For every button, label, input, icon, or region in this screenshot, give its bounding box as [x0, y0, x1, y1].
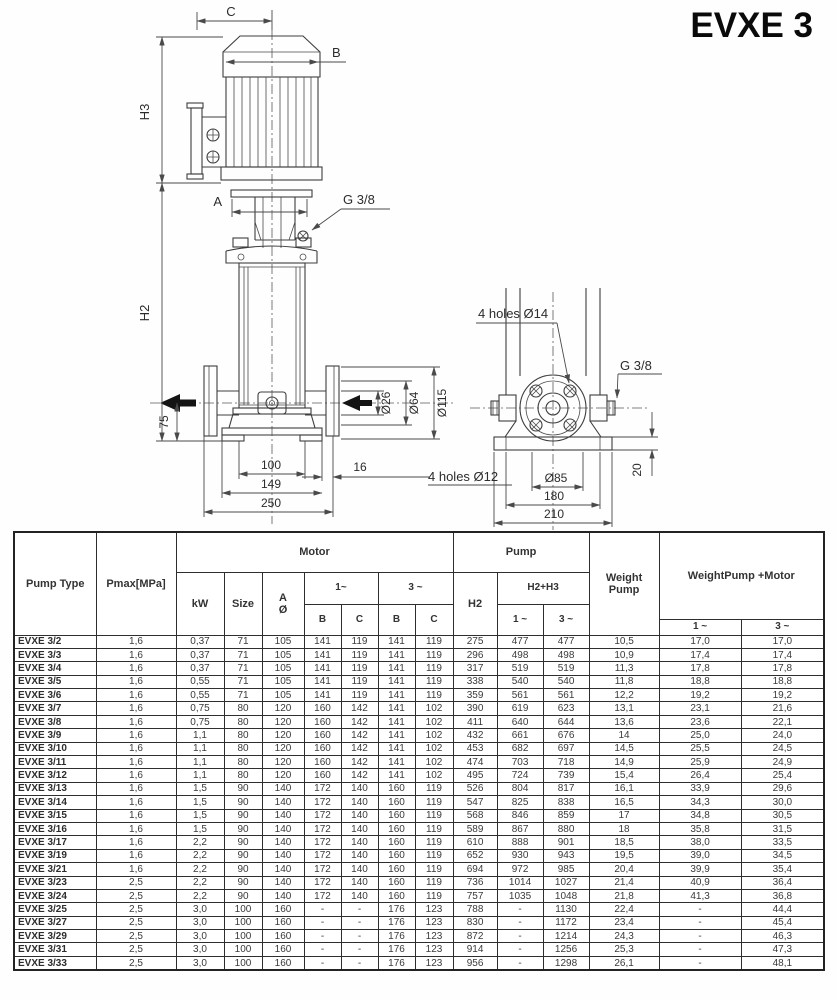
value-cell: 71: [224, 675, 262, 688]
value-cell: 880: [543, 822, 589, 835]
value-cell: 141: [378, 742, 415, 755]
value-cell: 3,0: [176, 916, 224, 929]
value-cell: 160: [304, 715, 341, 728]
value-cell: 24,9: [741, 756, 824, 769]
value-cell: 140: [262, 876, 304, 889]
value-cell: 105: [262, 635, 304, 648]
value-cell: 736: [453, 876, 497, 889]
header-b-3ph: B: [378, 604, 415, 635]
value-cell: 13,1: [589, 702, 659, 715]
value-cell: 1,6: [96, 715, 176, 728]
value-cell: 160: [304, 756, 341, 769]
value-cell: 568: [453, 809, 497, 822]
table-body: EVXE 3/21,60,377110514111914111927547747…: [14, 635, 824, 970]
header-weight-pump: WeightPump: [589, 532, 659, 635]
header-h2h3-3ph: 3 ~: [543, 604, 589, 635]
value-cell: 140: [341, 876, 378, 889]
table-row: EVXE 3/151,61,59014017214016011956884685…: [14, 809, 824, 822]
table-row: EVXE 3/121,61,18012016014214110249572473…: [14, 769, 824, 782]
value-cell: 17,0: [659, 635, 741, 648]
pump-type-cell: EVXE 3/12: [14, 769, 96, 782]
value-cell: 90: [224, 876, 262, 889]
value-cell: 838: [543, 796, 589, 809]
value-cell: 3,0: [176, 930, 224, 943]
value-cell: 21,4: [589, 876, 659, 889]
value-cell: 610: [453, 836, 497, 849]
pump-type-cell: EVXE 3/15: [14, 809, 96, 822]
header-pump-type: Pump Type: [14, 532, 96, 635]
value-cell: -: [659, 930, 741, 943]
value-cell: 36,4: [741, 876, 824, 889]
value-cell: -: [304, 916, 341, 929]
value-cell: 25,0: [659, 729, 741, 742]
pump-type-cell: EVXE 3/5: [14, 675, 96, 688]
value-cell: 23,1: [659, 702, 741, 715]
header-c-3ph: C: [415, 604, 453, 635]
value-cell: 453: [453, 742, 497, 755]
header-motor-1ph: 1~: [304, 572, 378, 604]
value-cell: 17: [589, 809, 659, 822]
value-cell: 34,5: [741, 849, 824, 862]
pump-type-cell: EVXE 3/7: [14, 702, 96, 715]
pump-type-cell: EVXE 3/21: [14, 863, 96, 876]
header-h2h3: H2+H3: [497, 572, 589, 604]
value-cell: 526: [453, 782, 497, 795]
value-cell: 119: [341, 689, 378, 702]
technical-drawing: C B H3 H2 75: [0, 0, 837, 531]
value-cell: 140: [341, 796, 378, 809]
value-cell: 2,5: [96, 930, 176, 943]
value-cell: 24,0: [741, 729, 824, 742]
value-cell: 141: [304, 662, 341, 675]
value-cell: 972: [497, 863, 543, 876]
value-cell: 589: [453, 822, 497, 835]
value-cell: 21,8: [589, 889, 659, 902]
weight-line2: Pump: [609, 584, 640, 596]
value-cell: 80: [224, 702, 262, 715]
value-cell: 11,3: [589, 662, 659, 675]
value-cell: 172: [304, 889, 341, 902]
value-cell: 119: [341, 648, 378, 661]
value-cell: 1130: [543, 903, 589, 916]
value-cell: 172: [304, 863, 341, 876]
pump-type-cell: EVXE 3/3: [14, 648, 96, 661]
value-cell: 3,0: [176, 956, 224, 970]
weight-line1: Weight: [606, 572, 642, 584]
value-cell: 100: [224, 903, 262, 916]
value-cell: 739: [543, 769, 589, 782]
dim-b: B: [226, 45, 346, 62]
value-cell: 17,0: [741, 635, 824, 648]
value-cell: 519: [497, 662, 543, 675]
dim-label-149: 149: [261, 477, 281, 491]
value-cell: 140: [341, 863, 378, 876]
value-cell: 119: [341, 635, 378, 648]
dim-20: 20: [612, 412, 658, 477]
value-cell: 160: [262, 916, 304, 929]
value-cell: 80: [224, 756, 262, 769]
pump-type-cell: EVXE 3/25: [14, 903, 96, 916]
value-cell: 160: [378, 849, 415, 862]
value-cell: 1,6: [96, 796, 176, 809]
value-cell: 160: [262, 943, 304, 956]
value-cell: 141: [378, 715, 415, 728]
value-cell: -: [341, 956, 378, 970]
value-cell: 105: [262, 662, 304, 675]
value-cell: 724: [497, 769, 543, 782]
value-cell: 17,8: [659, 662, 741, 675]
value-cell: 123: [415, 916, 453, 929]
value-cell: 160: [304, 742, 341, 755]
value-cell: 80: [224, 769, 262, 782]
value-cell: 17,4: [741, 648, 824, 661]
header-weight-pump-motor: WeightPump +Motor: [659, 532, 824, 619]
value-cell: 105: [262, 689, 304, 702]
value-cell: 956: [453, 956, 497, 970]
value-cell: 25,9: [659, 756, 741, 769]
value-cell: 160: [262, 930, 304, 943]
value-cell: 498: [543, 648, 589, 661]
value-cell: 71: [224, 635, 262, 648]
table-row: EVXE 3/332,53,0100160--176123956-129826,…: [14, 956, 824, 970]
value-cell: 80: [224, 742, 262, 755]
value-cell: 172: [304, 849, 341, 862]
value-cell: 160: [262, 903, 304, 916]
pump-type-cell: EVXE 3/23: [14, 876, 96, 889]
table-row: EVXE 3/272,53,0100160--176123830-117223,…: [14, 916, 824, 929]
value-cell: 817: [543, 782, 589, 795]
value-cell: 176: [378, 916, 415, 929]
dim-h3: H3: [137, 37, 223, 183]
value-cell: 100: [224, 943, 262, 956]
value-cell: 29,6: [741, 782, 824, 795]
value-cell: 71: [224, 689, 262, 702]
value-cell: 141: [378, 675, 415, 688]
dim-label-250: 250: [261, 496, 281, 510]
value-cell: 120: [262, 769, 304, 782]
value-cell: 17,8: [741, 662, 824, 675]
value-cell: 141: [378, 756, 415, 769]
pump-type-cell: EVXE 3/8: [14, 715, 96, 728]
table-row: EVXE 3/111,61,18012016014214110247470371…: [14, 756, 824, 769]
value-cell: 19,2: [659, 689, 741, 702]
value-cell: 80: [224, 729, 262, 742]
value-cell: 540: [497, 675, 543, 688]
value-cell: 3,0: [176, 943, 224, 956]
dim-label-100: 100: [261, 458, 281, 472]
table-row: EVXE 3/191,62,29014017214016011965293094…: [14, 849, 824, 862]
value-cell: 1256: [543, 943, 589, 956]
value-cell: 160: [378, 782, 415, 795]
value-cell: 495: [453, 769, 497, 782]
value-cell: 120: [262, 715, 304, 728]
value-cell: 71: [224, 648, 262, 661]
value-cell: 90: [224, 782, 262, 795]
value-cell: 0,75: [176, 702, 224, 715]
value-cell: 859: [543, 809, 589, 822]
value-cell: 142: [341, 756, 378, 769]
value-cell: 985: [543, 863, 589, 876]
value-cell: 296: [453, 648, 497, 661]
pump-type-cell: EVXE 3/13: [14, 782, 96, 795]
value-cell: 21,6: [741, 702, 824, 715]
value-cell: 16,1: [589, 782, 659, 795]
value-cell: 26,4: [659, 769, 741, 782]
value-cell: 1,6: [96, 782, 176, 795]
value-cell: 141: [304, 689, 341, 702]
value-cell: 18,8: [659, 675, 741, 688]
value-cell: 3,0: [176, 903, 224, 916]
value-cell: 176: [378, 956, 415, 970]
value-cell: 172: [304, 796, 341, 809]
value-cell: 1014: [497, 876, 543, 889]
value-cell: 23,6: [659, 715, 741, 728]
motor-base-band: [221, 167, 322, 180]
table-row: EVXE 3/161,61,59014017214016011958986788…: [14, 822, 824, 835]
value-cell: 1298: [543, 956, 589, 970]
value-cell: -: [497, 903, 543, 916]
g38-label-front: G 3/8: [343, 192, 375, 207]
value-cell: 2,2: [176, 863, 224, 876]
value-cell: 561: [543, 689, 589, 702]
dim-label-c: C: [226, 4, 235, 19]
vent-fitting: [298, 231, 308, 241]
value-cell: 25,5: [659, 742, 741, 755]
value-cell: 102: [415, 729, 453, 742]
value-cell: 477: [497, 635, 543, 648]
value-cell: 90: [224, 849, 262, 862]
value-cell: -: [341, 930, 378, 943]
right-flange: [305, 366, 339, 436]
holes12-label: 4 holes Ø12: [428, 469, 498, 484]
value-cell: 41,3: [659, 889, 741, 902]
value-cell: 38,0: [659, 836, 741, 849]
value-cell: -: [304, 943, 341, 956]
value-cell: 140: [341, 822, 378, 835]
value-cell: 1172: [543, 916, 589, 929]
header-pump: Pump: [453, 532, 589, 572]
value-cell: 2,5: [96, 903, 176, 916]
value-cell: 160: [304, 769, 341, 782]
value-cell: 1,1: [176, 756, 224, 769]
value-cell: 140: [262, 822, 304, 835]
table-row: EVXE 3/242,52,29014017214016011975710351…: [14, 889, 824, 902]
table-row: EVXE 3/232,52,29014017214016011973610141…: [14, 876, 824, 889]
flow-arrow-suction: [342, 395, 372, 411]
value-cell: 25,4: [741, 769, 824, 782]
dim-label-d115: Ø115: [435, 388, 449, 417]
value-cell: 18: [589, 822, 659, 835]
header-weight-3ph: 3 ~: [741, 619, 824, 635]
value-cell: 498: [497, 648, 543, 661]
table-row: EVXE 3/91,61,180120160142141102432661676…: [14, 729, 824, 742]
dim-label-180: 180: [544, 489, 564, 503]
table-row: EVXE 3/41,60,377110514111914111931751951…: [14, 662, 824, 675]
dimensions-table: Pump Type Pmax[MPa] Motor Pump WeightPum…: [13, 531, 825, 971]
pump-type-cell: EVXE 3/19: [14, 849, 96, 862]
value-cell: 830: [453, 916, 497, 929]
value-cell: 888: [497, 836, 543, 849]
value-cell: 411: [453, 715, 497, 728]
value-cell: 140: [341, 889, 378, 902]
value-cell: 1,6: [96, 635, 176, 648]
dim-d85: Ø85: [532, 471, 583, 487]
value-cell: 119: [415, 796, 453, 809]
dim-label-d26: Ø26: [379, 391, 393, 414]
value-cell: 123: [415, 930, 453, 943]
value-cell: 123: [415, 943, 453, 956]
value-cell: 90: [224, 809, 262, 822]
value-cell: -: [497, 916, 543, 929]
value-cell: 640: [497, 715, 543, 728]
value-cell: -: [497, 930, 543, 943]
value-cell: 18,8: [741, 675, 824, 688]
value-cell: 12,2: [589, 689, 659, 702]
value-cell: 176: [378, 943, 415, 956]
value-cell: 338: [453, 675, 497, 688]
dim-c: C: [197, 4, 272, 30]
value-cell: 23,4: [589, 916, 659, 929]
value-cell: 1027: [543, 876, 589, 889]
value-cell: 1,6: [96, 729, 176, 742]
value-cell: 15,4: [589, 769, 659, 782]
value-cell: 142: [341, 769, 378, 782]
value-cell: 141: [304, 635, 341, 648]
value-cell: 1035: [497, 889, 543, 902]
value-cell: 1,6: [96, 662, 176, 675]
value-cell: 119: [415, 863, 453, 876]
value-cell: -: [304, 930, 341, 943]
value-cell: 172: [304, 876, 341, 889]
value-cell: -: [497, 943, 543, 956]
value-cell: 141: [378, 635, 415, 648]
table-row: EVXE 3/71,60,758012016014214110239061962…: [14, 702, 824, 715]
value-cell: 2,2: [176, 876, 224, 889]
value-cell: 141: [304, 648, 341, 661]
value-cell: 10,9: [589, 648, 659, 661]
table-row: EVXE 3/211,62,29014017214016011969497298…: [14, 863, 824, 876]
value-cell: 140: [262, 849, 304, 862]
value-cell: 694: [453, 863, 497, 876]
value-cell: 35,4: [741, 863, 824, 876]
value-cell: 867: [497, 822, 543, 835]
value-cell: 141: [304, 675, 341, 688]
value-cell: 2,2: [176, 849, 224, 862]
value-cell: 119: [415, 675, 453, 688]
value-cell: 477: [543, 635, 589, 648]
value-cell: 100: [224, 956, 262, 970]
value-cell: 474: [453, 756, 497, 769]
dim-label-210: 210: [544, 507, 564, 521]
value-cell: 18,5: [589, 836, 659, 849]
value-cell: 1,6: [96, 648, 176, 661]
value-cell: 359: [453, 689, 497, 702]
value-cell: 275: [453, 635, 497, 648]
value-cell: 661: [497, 729, 543, 742]
value-cell: 142: [341, 729, 378, 742]
value-cell: -: [659, 916, 741, 929]
value-cell: 1,1: [176, 729, 224, 742]
value-cell: 540: [543, 675, 589, 688]
value-cell: 33,9: [659, 782, 741, 795]
header-motor-3ph: 3 ~: [378, 572, 453, 604]
callout-g38-front: G 3/8: [312, 192, 390, 230]
value-cell: 10,5: [589, 635, 659, 648]
value-cell: 140: [262, 796, 304, 809]
value-cell: 14,9: [589, 756, 659, 769]
value-cell: 46,3: [741, 930, 824, 943]
value-cell: 20,4: [589, 863, 659, 876]
pump-type-cell: EVXE 3/27: [14, 916, 96, 929]
pump-front-view: C B H3 H2 75: [137, 4, 456, 524]
dim-label-75: 75: [157, 415, 171, 429]
value-cell: 1214: [543, 930, 589, 943]
header-pmax: Pmax[MPa]: [96, 532, 176, 635]
value-cell: 19,5: [589, 849, 659, 862]
value-cell: 119: [415, 782, 453, 795]
table-header: Pump Type Pmax[MPa] Motor Pump WeightPum…: [14, 532, 824, 635]
dim-100: 100: [239, 458, 305, 474]
value-cell: 1,6: [96, 689, 176, 702]
value-cell: 140: [341, 809, 378, 822]
table-row: EVXE 3/81,60,758012016014214110241164064…: [14, 715, 824, 728]
value-cell: 39,9: [659, 863, 741, 876]
value-cell: 623: [543, 702, 589, 715]
pump-type-cell: EVXE 3/33: [14, 956, 96, 970]
value-cell: 1,5: [176, 796, 224, 809]
value-cell: 2,5: [96, 916, 176, 929]
value-cell: 788: [453, 903, 497, 916]
motor-cap: [223, 36, 320, 77]
value-cell: 119: [415, 836, 453, 849]
value-cell: 35,8: [659, 822, 741, 835]
value-cell: 160: [304, 729, 341, 742]
value-cell: 119: [415, 889, 453, 902]
callout-holes12: 4 holes Ø12: [428, 469, 512, 485]
value-cell: 1,6: [96, 756, 176, 769]
value-cell: 100: [224, 916, 262, 929]
value-cell: -: [659, 956, 741, 970]
holes14-label: 4 holes Ø14: [478, 306, 548, 321]
value-cell: 682: [497, 742, 543, 755]
value-cell: 0,55: [176, 689, 224, 702]
value-cell: 22,1: [741, 715, 824, 728]
value-cell: 1,6: [96, 742, 176, 755]
value-cell: 48,1: [741, 956, 824, 970]
value-cell: 676: [543, 729, 589, 742]
value-cell: 119: [415, 876, 453, 889]
table-row: EVXE 3/141,61,59014017214016011954782583…: [14, 796, 824, 809]
value-cell: 697: [543, 742, 589, 755]
value-cell: 119: [415, 822, 453, 835]
g38-label-base: G 3/8: [620, 358, 652, 373]
value-cell: 2,5: [96, 876, 176, 889]
value-cell: 102: [415, 756, 453, 769]
table-row: EVXE 3/171,62,29014017214016011961088890…: [14, 836, 824, 849]
pump-type-cell: EVXE 3/11: [14, 756, 96, 769]
header-b-1ph: B: [304, 604, 341, 635]
value-cell: 1,6: [96, 863, 176, 876]
value-cell: 90: [224, 836, 262, 849]
pump-type-cell: EVXE 3/6: [14, 689, 96, 702]
value-cell: 1,6: [96, 849, 176, 862]
table-row: EVXE 3/312,53,0100160--176123914-125625,…: [14, 943, 824, 956]
value-cell: 140: [262, 836, 304, 849]
value-cell: -: [304, 956, 341, 970]
value-cell: 90: [224, 796, 262, 809]
value-cell: 24,5: [741, 742, 824, 755]
dim-label-d85: Ø85: [545, 471, 568, 485]
